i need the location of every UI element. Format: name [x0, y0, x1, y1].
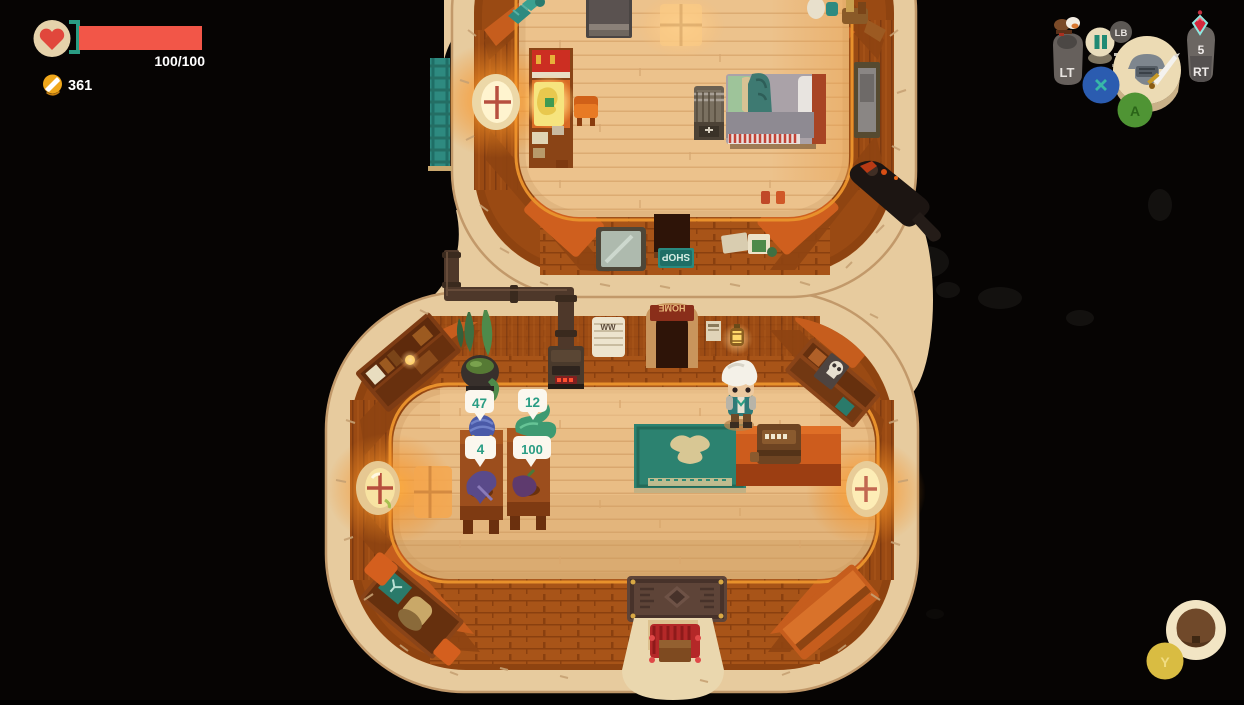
svg-text:Y: Y [1160, 654, 1170, 670]
svg-text:100/100: 100/100 [154, 53, 205, 69]
svg-text:LT: LT [1060, 65, 1075, 80]
svg-text:A: A [1130, 103, 1140, 119]
svg-text:361: 361 [68, 78, 92, 94]
svg-text:47: 47 [472, 396, 487, 411]
svg-text:HOME: HOME [659, 303, 686, 313]
svg-text:12: 12 [525, 395, 540, 410]
svg-text:LB: LB [1115, 28, 1128, 39]
svg-text:SHOP: SHOP [662, 251, 691, 262]
svg-text:WW: WW [600, 323, 616, 332]
svg-text:RT: RT [1193, 65, 1210, 79]
svg-text:5: 5 [1198, 43, 1205, 57]
svg-text:100: 100 [521, 442, 543, 457]
svg-text:4: 4 [477, 442, 485, 457]
